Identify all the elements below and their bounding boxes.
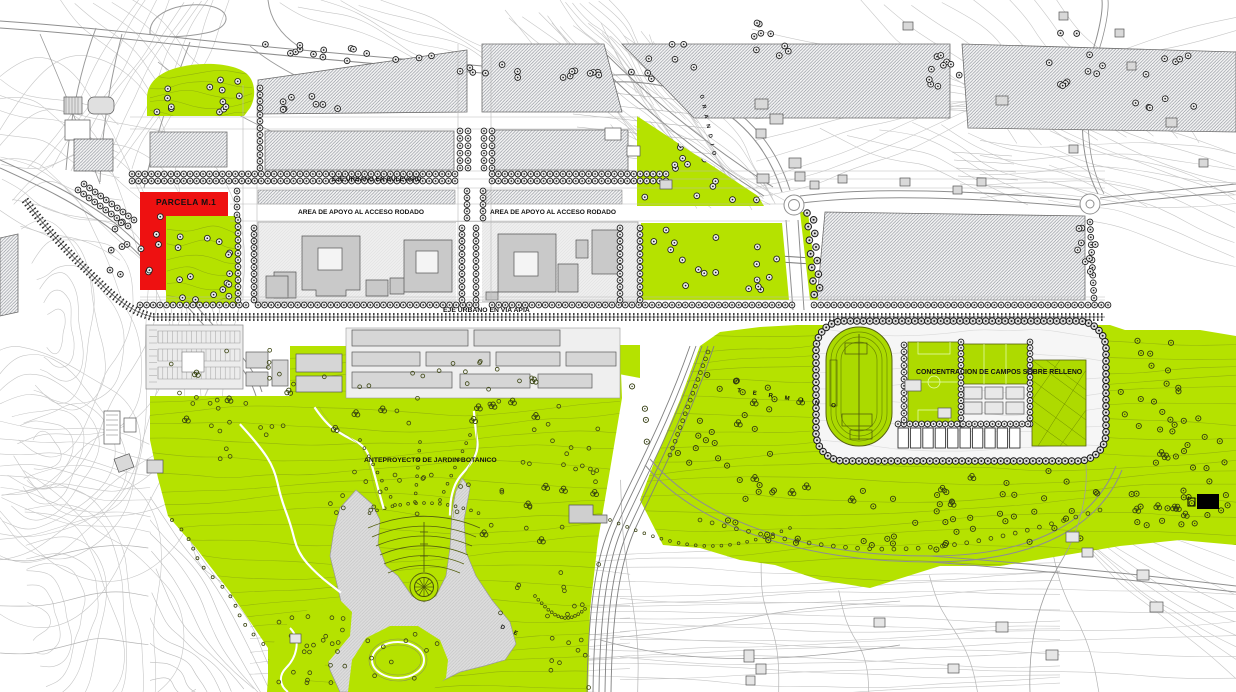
svg-text:CONCENTRACION DE CAMPOS SOBRE: CONCENTRACION DE CAMPOS SOBRE RELLENO xyxy=(916,369,1083,376)
svg-text:PARCELA M.1: PARCELA M.1 xyxy=(156,197,216,207)
svg-text:EJE URBANO EN VIA APIA: EJE URBANO EN VIA APIA xyxy=(443,307,530,314)
svg-text:EJE URBANO EN BULEVARD: EJE URBANO EN BULEVARD xyxy=(332,176,422,183)
svg-text:AREA DE APOYO AL ACCESO RODADO: AREA DE APOYO AL ACCESO RODADO xyxy=(298,209,424,216)
svg-text:ANTEPROYECTO DE JARDIN BOTANIC: ANTEPROYECTO DE JARDIN BOTANICO xyxy=(364,457,497,464)
svg-text:AREA DE APOYO AL ACCESO RODADO: AREA DE APOYO AL ACCESO RODADO xyxy=(490,209,616,216)
